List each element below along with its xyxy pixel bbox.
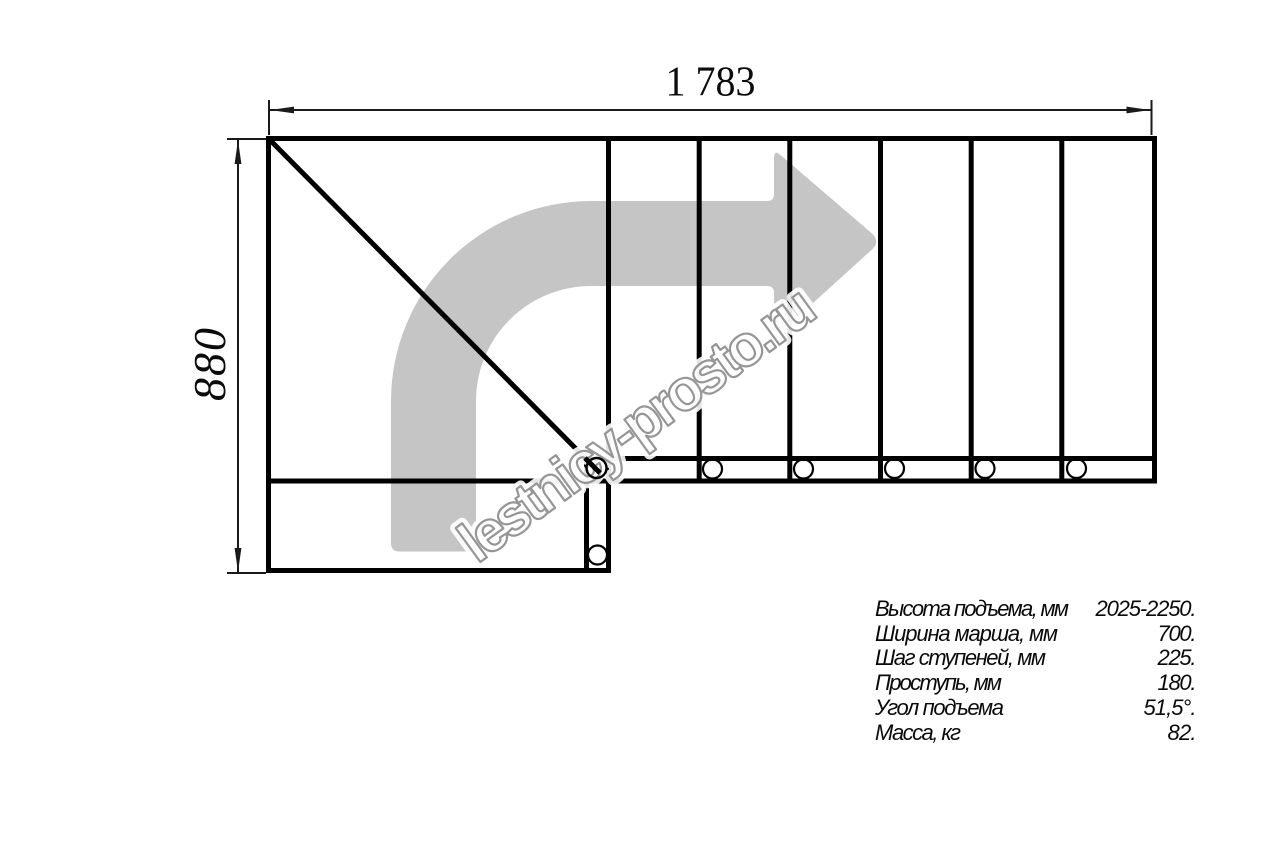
svg-text:Ширина марша, мм: Ширина марша, мм: [875, 621, 1058, 646]
svg-text:51,5°.: 51,5°.: [1144, 695, 1197, 720]
svg-text:700.: 700.: [1158, 621, 1197, 646]
svg-text:180.: 180.: [1158, 670, 1197, 695]
svg-text:225.: 225.: [1157, 645, 1197, 670]
svg-text:Шаг ступеней, мм: Шаг ступеней, мм: [875, 645, 1046, 670]
svg-text:Проступь, мм: Проступь, мм: [875, 670, 1002, 695]
svg-text:Масса, кг: Масса, кг: [875, 720, 961, 745]
svg-text:2025-2250.: 2025-2250.: [1095, 596, 1197, 621]
svg-text:82.: 82.: [1168, 720, 1197, 745]
svg-text:Высота подъема, мм: Высота подъема, мм: [875, 596, 1069, 621]
svg-text:Угол подъема: Угол подъема: [874, 695, 1004, 720]
svg-text:880: 880: [184, 326, 235, 401]
svg-text:1 783: 1 783: [666, 60, 756, 106]
